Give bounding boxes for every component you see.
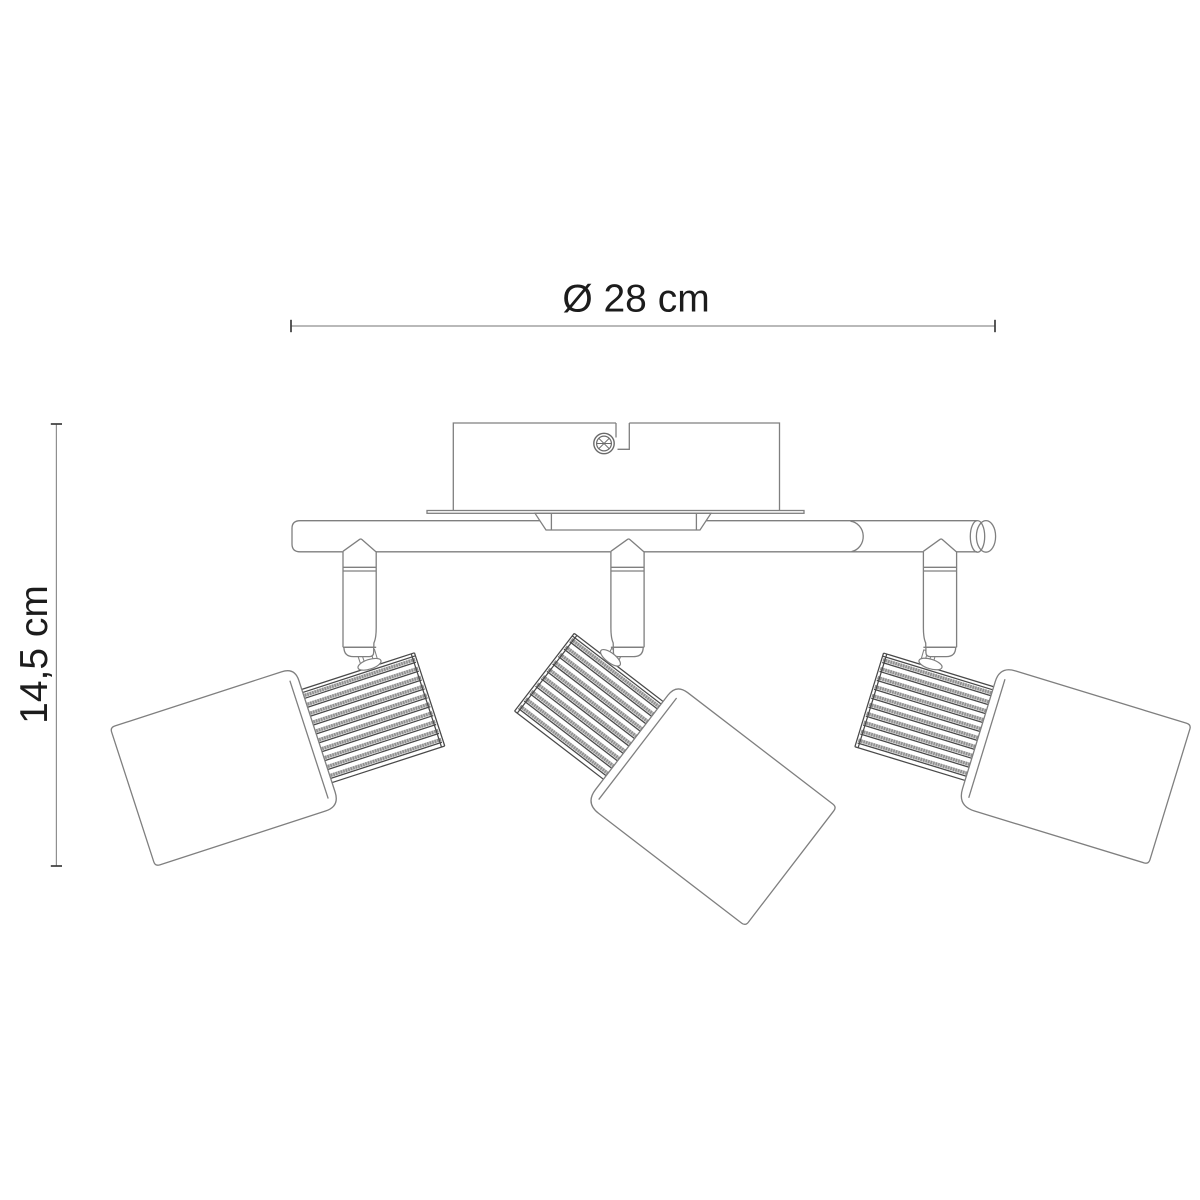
svg-text:14,5 cm: 14,5 cm [13,585,56,724]
svg-text:Ø 28 cm: Ø 28 cm [562,278,709,321]
